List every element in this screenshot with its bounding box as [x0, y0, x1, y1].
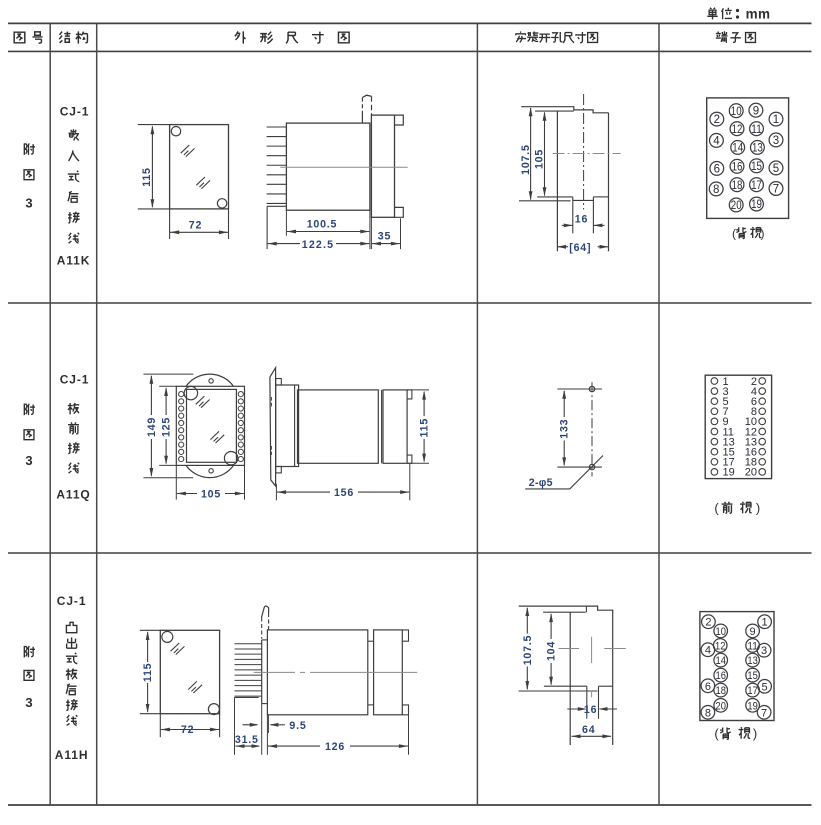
svg-text:8: 8 — [705, 707, 711, 719]
svg-text:16: 16 — [732, 161, 743, 173]
svg-text:64: 64 — [582, 724, 595, 736]
svg-text:16: 16 — [716, 670, 726, 682]
svg-text:149: 149 — [146, 417, 158, 437]
svg-text:19: 19 — [751, 199, 762, 211]
svg-text:122.5: 122.5 — [302, 239, 335, 251]
svg-text:16: 16 — [575, 214, 588, 226]
svg-text:2-φ5: 2-φ5 — [529, 477, 553, 489]
svg-text:107.5: 107.5 — [520, 144, 532, 175]
svg-text:2: 2 — [705, 617, 711, 629]
svg-text:72: 72 — [189, 220, 202, 232]
svg-text:105: 105 — [534, 149, 546, 169]
svg-text:115: 115 — [141, 167, 153, 187]
svg-text:125: 125 — [161, 417, 173, 437]
svg-text:3: 3 — [773, 135, 779, 147]
svg-text:11: 11 — [747, 640, 757, 652]
svg-text:115: 115 — [142, 663, 154, 683]
svg-text:16: 16 — [584, 704, 597, 716]
svg-text:20: 20 — [716, 700, 726, 712]
svg-text:6: 6 — [714, 164, 720, 176]
svg-text:126: 126 — [325, 741, 345, 753]
svg-text:12: 12 — [715, 640, 725, 652]
svg-text:17: 17 — [751, 180, 762, 192]
svg-text:3: 3 — [25, 695, 32, 710]
svg-text:14: 14 — [732, 143, 743, 155]
svg-text:): ) — [756, 501, 760, 516]
svg-text:3: 3 — [25, 195, 32, 210]
svg-text:11: 11 — [751, 124, 762, 136]
svg-text:100.5: 100.5 — [307, 219, 338, 231]
svg-text:A11Q: A11Q — [56, 487, 90, 501]
svg-text:19: 19 — [747, 700, 757, 712]
svg-text:13: 13 — [752, 143, 763, 155]
svg-text:5: 5 — [762, 681, 768, 693]
svg-text:14: 14 — [716, 655, 726, 667]
svg-text:CJ-1: CJ-1 — [57, 594, 87, 608]
svg-text:): ) — [753, 726, 757, 741]
svg-text:[64]: [64] — [569, 242, 591, 254]
svg-text:20: 20 — [731, 200, 742, 212]
svg-text:19: 19 — [723, 467, 735, 479]
svg-text:115: 115 — [419, 418, 431, 438]
svg-text:(: ( — [714, 726, 719, 741]
svg-text:CJ-1: CJ-1 — [60, 372, 90, 386]
svg-text:mm: mm — [746, 7, 771, 22]
svg-text:8: 8 — [713, 184, 719, 196]
svg-text:9.5: 9.5 — [289, 720, 306, 732]
svg-text:18: 18 — [732, 180, 743, 192]
svg-text:15: 15 — [747, 670, 757, 682]
svg-text:15: 15 — [751, 161, 762, 173]
svg-text:72: 72 — [181, 724, 194, 736]
svg-text:6: 6 — [705, 681, 711, 693]
svg-text:(: ( — [714, 501, 719, 516]
svg-text:31.5: 31.5 — [235, 734, 259, 746]
svg-text:20: 20 — [745, 467, 757, 479]
svg-text:1: 1 — [773, 114, 779, 126]
svg-text:18: 18 — [716, 685, 726, 697]
svg-text:9: 9 — [753, 105, 759, 117]
svg-text:10: 10 — [731, 106, 742, 118]
svg-text:4: 4 — [705, 645, 711, 657]
svg-text:2: 2 — [714, 114, 720, 126]
svg-text:7: 7 — [773, 184, 779, 196]
svg-text:17: 17 — [747, 685, 757, 697]
svg-text:105: 105 — [201, 489, 221, 501]
svg-text:104: 104 — [546, 641, 558, 661]
svg-text:1: 1 — [762, 617, 768, 629]
svg-text:3: 3 — [25, 453, 32, 468]
svg-text:3: 3 — [761, 645, 767, 657]
svg-text:4: 4 — [713, 136, 720, 148]
svg-text:35: 35 — [378, 231, 391, 243]
svg-text:107.5: 107.5 — [522, 635, 534, 666]
svg-text:13: 13 — [747, 655, 757, 667]
svg-text:9: 9 — [750, 626, 756, 638]
svg-text:7: 7 — [761, 707, 767, 719]
svg-text:A11H: A11H — [55, 748, 89, 762]
svg-text:156: 156 — [334, 487, 354, 499]
svg-text:133: 133 — [559, 419, 571, 439]
svg-text:): ) — [761, 227, 765, 241]
svg-text:5: 5 — [773, 163, 779, 175]
svg-text:12: 12 — [732, 124, 743, 136]
svg-text:10: 10 — [716, 626, 726, 638]
svg-text:A11K: A11K — [57, 254, 91, 268]
svg-text:CJ-1: CJ-1 — [60, 104, 90, 118]
svg-text:(: ( — [732, 227, 736, 241]
